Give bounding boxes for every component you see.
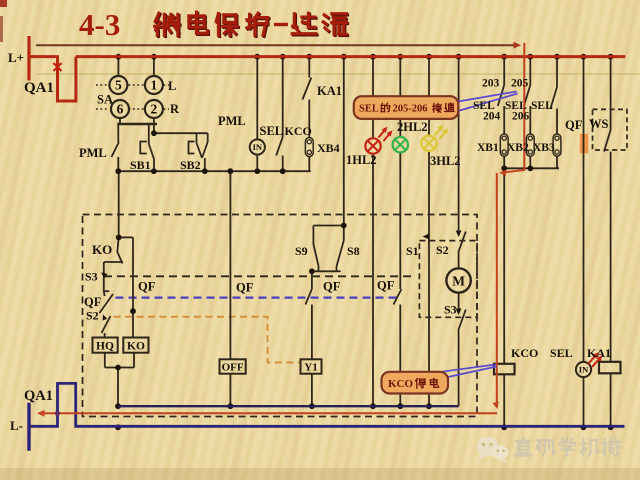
svg-text:204: 204 [483,111,501,123]
svg-text:HQ: HQ [96,340,114,352]
svg-text:1: 1 [151,78,158,93]
svg-text:S3: S3 [85,270,98,284]
svg-text:WS: WS [589,117,609,131]
svg-text:205: 205 [511,78,529,90]
svg-text:PML: PML [79,146,107,160]
svg-text:206: 206 [512,111,530,123]
svg-text:QF: QF [84,295,102,309]
svg-text:M: M [452,274,465,289]
svg-text:205-206: 205-206 [393,104,428,115]
svg-text:XB4: XB4 [317,141,340,155]
svg-text:S2: S2 [86,309,99,323]
svg-text:KO: KO [92,242,112,257]
svg-text:KCO: KCO [388,378,414,390]
svg-text:QA1: QA1 [24,80,54,96]
svg-text:XB1: XB1 [477,142,499,154]
svg-text:1HL2: 1HL2 [346,153,377,167]
svg-text:2HL2: 2HL2 [397,120,428,134]
svg-text:L: L [168,79,176,93]
svg-text:KA1: KA1 [317,84,342,98]
svg-text:S8: S8 [347,244,360,258]
svg-text:S2: S2 [436,243,449,257]
svg-text:203: 203 [482,78,500,90]
svg-text:3HL2: 3HL2 [430,154,461,168]
svg-text:4-3: 4-3 [79,7,120,42]
svg-text:PML: PML [218,114,246,128]
svg-text:SEL: SEL [359,104,379,115]
svg-text:SEL: SEL [260,124,284,138]
svg-text:XB2: XB2 [507,142,529,154]
svg-text:OFF: OFF [222,362,244,374]
svg-text:R: R [170,102,180,116]
svg-text:IN: IN [253,142,263,152]
svg-text:Y1: Y1 [304,362,317,374]
svg-text:SA: SA [97,93,113,107]
svg-text:SEL: SEL [550,346,573,360]
svg-text:KCO: KCO [511,346,538,360]
svg-text:QF: QF [236,281,254,295]
svg-text:5: 5 [115,78,122,93]
svg-text:QF: QF [138,280,156,294]
svg-text:S1: S1 [406,244,419,258]
svg-text:L+: L+ [8,50,24,65]
svg-text:SEL: SEL [531,100,553,112]
svg-text:KO: KO [127,340,145,352]
svg-text:QF: QF [377,279,395,293]
svg-text:QA1: QA1 [24,388,53,404]
svg-text:SB2: SB2 [180,158,201,172]
svg-text:S3: S3 [444,303,457,317]
svg-text:S9: S9 [295,244,308,258]
svg-text:IN: IN [579,365,589,375]
svg-text:XB3: XB3 [533,142,555,154]
svg-text:KA1: KA1 [587,346,611,360]
svg-text:6: 6 [117,102,124,117]
svg-text:L-: L- [10,418,23,433]
svg-text:KCO: KCO [285,124,312,138]
svg-text:QF: QF [565,118,583,132]
svg-text:SB1: SB1 [130,158,151,172]
svg-text:2: 2 [151,102,158,117]
svg-text:QF: QF [323,280,341,294]
